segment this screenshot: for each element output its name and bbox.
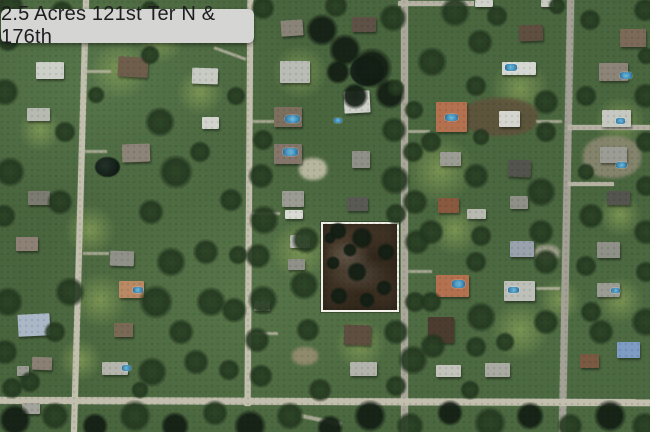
- tree-canopy: [575, 85, 597, 107]
- tree-canopy: [249, 364, 273, 388]
- tree-canopy: [330, 287, 348, 305]
- tree-canopy: [156, 247, 186, 277]
- tree-canopy: [376, 280, 392, 296]
- building-roof: [282, 191, 304, 207]
- building-roof: [32, 357, 52, 371]
- building-roof: [36, 62, 64, 79]
- tree-canopy: [0, 339, 18, 365]
- building-roof: [202, 117, 219, 129]
- driveway: [83, 150, 107, 153]
- tree-canopy: [633, 0, 650, 22]
- tree-canopy: [342, 83, 368, 109]
- tree-canopy: [226, 86, 246, 106]
- tree-canopy: [470, 225, 492, 247]
- tree-canopy: [633, 219, 650, 245]
- tree-canopy: [635, 261, 650, 283]
- tree-canopy: [548, 0, 566, 15]
- tree-canopy: [404, 100, 424, 120]
- tree-canopy: [219, 188, 243, 212]
- swimming-pool: [452, 280, 465, 288]
- tree-canopy: [0, 78, 19, 106]
- tree-canopy: [635, 131, 650, 153]
- pond: [95, 157, 120, 177]
- tree-canopy: [631, 307, 650, 337]
- tree-canopy: [420, 333, 446, 359]
- tree-canopy: [119, 400, 151, 432]
- building-roof: [110, 251, 135, 267]
- tree-canopy: [139, 285, 173, 319]
- tree-canopy: [296, 318, 320, 342]
- tree-canopy: [377, 243, 395, 261]
- tree-canopy: [252, 129, 274, 151]
- building-roof: [352, 151, 370, 168]
- tree-canopy: [54, 121, 76, 143]
- building-roof: [288, 259, 305, 270]
- tree-canopy: [324, 232, 336, 244]
- lawn-patch: [58, 338, 102, 382]
- swimming-pool: [508, 287, 519, 293]
- tree-canopy: [228, 245, 248, 265]
- tree-canopy: [579, 9, 601, 31]
- tree-canopy: [308, 378, 332, 402]
- tree-canopy: [463, 163, 489, 189]
- satellite-map: 2.5 Acres 121st Ter N & 176th: [0, 0, 650, 432]
- tree-canopy: [159, 155, 193, 189]
- swimming-pool: [616, 162, 627, 168]
- tree-canopy: [631, 412, 650, 432]
- tree-canopy: [637, 47, 650, 65]
- tree-canopy: [0, 157, 25, 187]
- tree-canopy: [248, 163, 274, 189]
- tree-canopy: [440, 0, 470, 27]
- tree-canopy: [557, 413, 583, 432]
- tree-canopy: [168, 319, 194, 345]
- driveway: [83, 252, 109, 255]
- tree-canopy: [82, 413, 108, 432]
- swimming-pool: [283, 148, 298, 156]
- tree-canopy: [533, 89, 559, 115]
- tree-canopy: [385, 375, 407, 397]
- tree-canopy: [575, 255, 597, 277]
- building-roof: [580, 354, 599, 368]
- tree-canopy: [460, 380, 480, 400]
- tree-canopy: [437, 400, 463, 426]
- tree-canopy: [234, 410, 266, 432]
- swimming-pool: [334, 118, 342, 123]
- swimming-pool: [616, 118, 625, 124]
- building-roof: [344, 325, 372, 346]
- building-roof: [347, 197, 368, 211]
- tree-canopy: [0, 204, 16, 228]
- dirt-patch: [299, 158, 327, 180]
- tree-canopy: [131, 381, 149, 399]
- tree-canopy: [420, 291, 442, 313]
- tree-canopy: [588, 319, 614, 345]
- building-roof: [192, 68, 219, 85]
- tree-canopy: [41, 402, 69, 430]
- building-roof: [467, 209, 486, 219]
- building-roof: [620, 29, 646, 47]
- building-roof: [508, 159, 532, 177]
- building-roof: [607, 191, 630, 205]
- building-roof: [617, 342, 640, 358]
- tree-canopy: [326, 60, 350, 84]
- road: [559, 0, 574, 432]
- building-roof: [114, 323, 133, 337]
- tree-canopy: [466, 302, 496, 332]
- tree-canopy: [396, 412, 424, 432]
- tree-canopy: [472, 128, 490, 146]
- tree-canopy: [343, 243, 357, 257]
- tree-canopy: [420, 131, 442, 153]
- tree-canopy: [465, 336, 487, 358]
- driveway: [536, 287, 560, 290]
- building-roof: [16, 237, 38, 251]
- tree-canopy: [533, 309, 559, 335]
- tree-canopy: [276, 402, 304, 430]
- tree-canopy: [467, 29, 493, 55]
- tree-canopy: [326, 256, 340, 270]
- tree-canopy: [87, 86, 105, 104]
- tree-canopy: [486, 5, 508, 27]
- building-roof: [122, 144, 151, 163]
- tree-canopy: [248, 285, 278, 315]
- tree-canopy: [19, 371, 41, 393]
- tree-canopy: [202, 400, 228, 426]
- tree-canopy: [516, 402, 544, 430]
- tree-canopy: [417, 47, 447, 77]
- tree-canopy: [381, 117, 407, 143]
- building-roof: [597, 242, 620, 258]
- tree-canopy: [218, 359, 240, 381]
- listing-title-text: 2.5 Acres 121st Ter N & 176th: [1, 3, 254, 49]
- swimming-pool: [505, 64, 517, 71]
- building-roof: [600, 147, 627, 163]
- tree-canopy: [528, 219, 554, 245]
- tree-canopy: [418, 219, 444, 245]
- tree-canopy: [533, 249, 559, 275]
- tree-canopy: [244, 327, 270, 353]
- building-roof: [438, 198, 459, 213]
- driveway: [83, 70, 111, 73]
- tree-canopy: [526, 177, 556, 207]
- tree-canopy: [347, 262, 367, 282]
- tree-canopy: [251, 0, 275, 20]
- tree-canopy: [55, 277, 85, 307]
- building-roof: [280, 61, 310, 83]
- tree-canopy: [635, 175, 650, 197]
- tree-canopy: [44, 321, 66, 343]
- tree-canopy: [0, 287, 23, 317]
- building-roof: [352, 17, 376, 32]
- dirt-patch: [292, 347, 318, 365]
- building-roof: [27, 108, 50, 121]
- tree-canopy: [633, 83, 650, 109]
- tree-canopy: [383, 319, 409, 345]
- tree-canopy: [535, 121, 557, 143]
- driveway: [408, 270, 432, 273]
- building-roof: [280, 19, 303, 36]
- tree-canopy: [465, 75, 487, 97]
- swimming-pool: [611, 288, 620, 293]
- screenshot-root: 2.5 Acres 121st Ter N & 176th: [0, 0, 650, 432]
- tree-canopy: [465, 251, 487, 273]
- building-roof: [485, 363, 510, 377]
- swimming-pool: [620, 72, 632, 79]
- tree-canopy: [354, 400, 386, 432]
- tree-canopy: [495, 332, 515, 352]
- building-roof: [499, 111, 520, 127]
- tree-canopy: [161, 412, 189, 432]
- tree-canopy: [578, 203, 604, 229]
- tree-canopy: [196, 287, 226, 317]
- building-roof: [285, 210, 303, 219]
- building-roof: [350, 362, 377, 376]
- tree-canopy: [138, 199, 164, 225]
- tree-canopy: [474, 407, 506, 432]
- swimming-pool: [285, 115, 300, 123]
- tree-canopy: [189, 141, 211, 163]
- tree-canopy: [379, 4, 407, 32]
- tree-canopy: [145, 107, 175, 137]
- tree-canopy: [249, 205, 279, 235]
- tree-canopy: [324, 0, 348, 18]
- tree-canopy: [47, 189, 73, 215]
- tree-canopy: [385, 203, 407, 225]
- building-roof: [519, 25, 544, 42]
- road: [568, 182, 614, 186]
- swimming-pool: [445, 114, 458, 121]
- tree-canopy: [183, 349, 209, 375]
- tree-canopy: [292, 226, 320, 254]
- tree-canopy: [289, 270, 319, 300]
- tree-canopy: [317, 415, 343, 432]
- tree-canopy: [245, 243, 271, 269]
- tree-canopy: [594, 400, 626, 432]
- tree-canopy: [387, 79, 405, 97]
- tree-canopy: [0, 404, 31, 432]
- swimming-pool: [122, 365, 131, 371]
- building-roof: [436, 365, 461, 377]
- tree-canopy: [577, 163, 595, 181]
- tree-canopy: [193, 239, 219, 265]
- tree-canopy: [359, 292, 375, 308]
- building-roof: [440, 152, 461, 166]
- listing-title-badge: 2.5 Acres 121st Ter N & 176th: [1, 9, 254, 43]
